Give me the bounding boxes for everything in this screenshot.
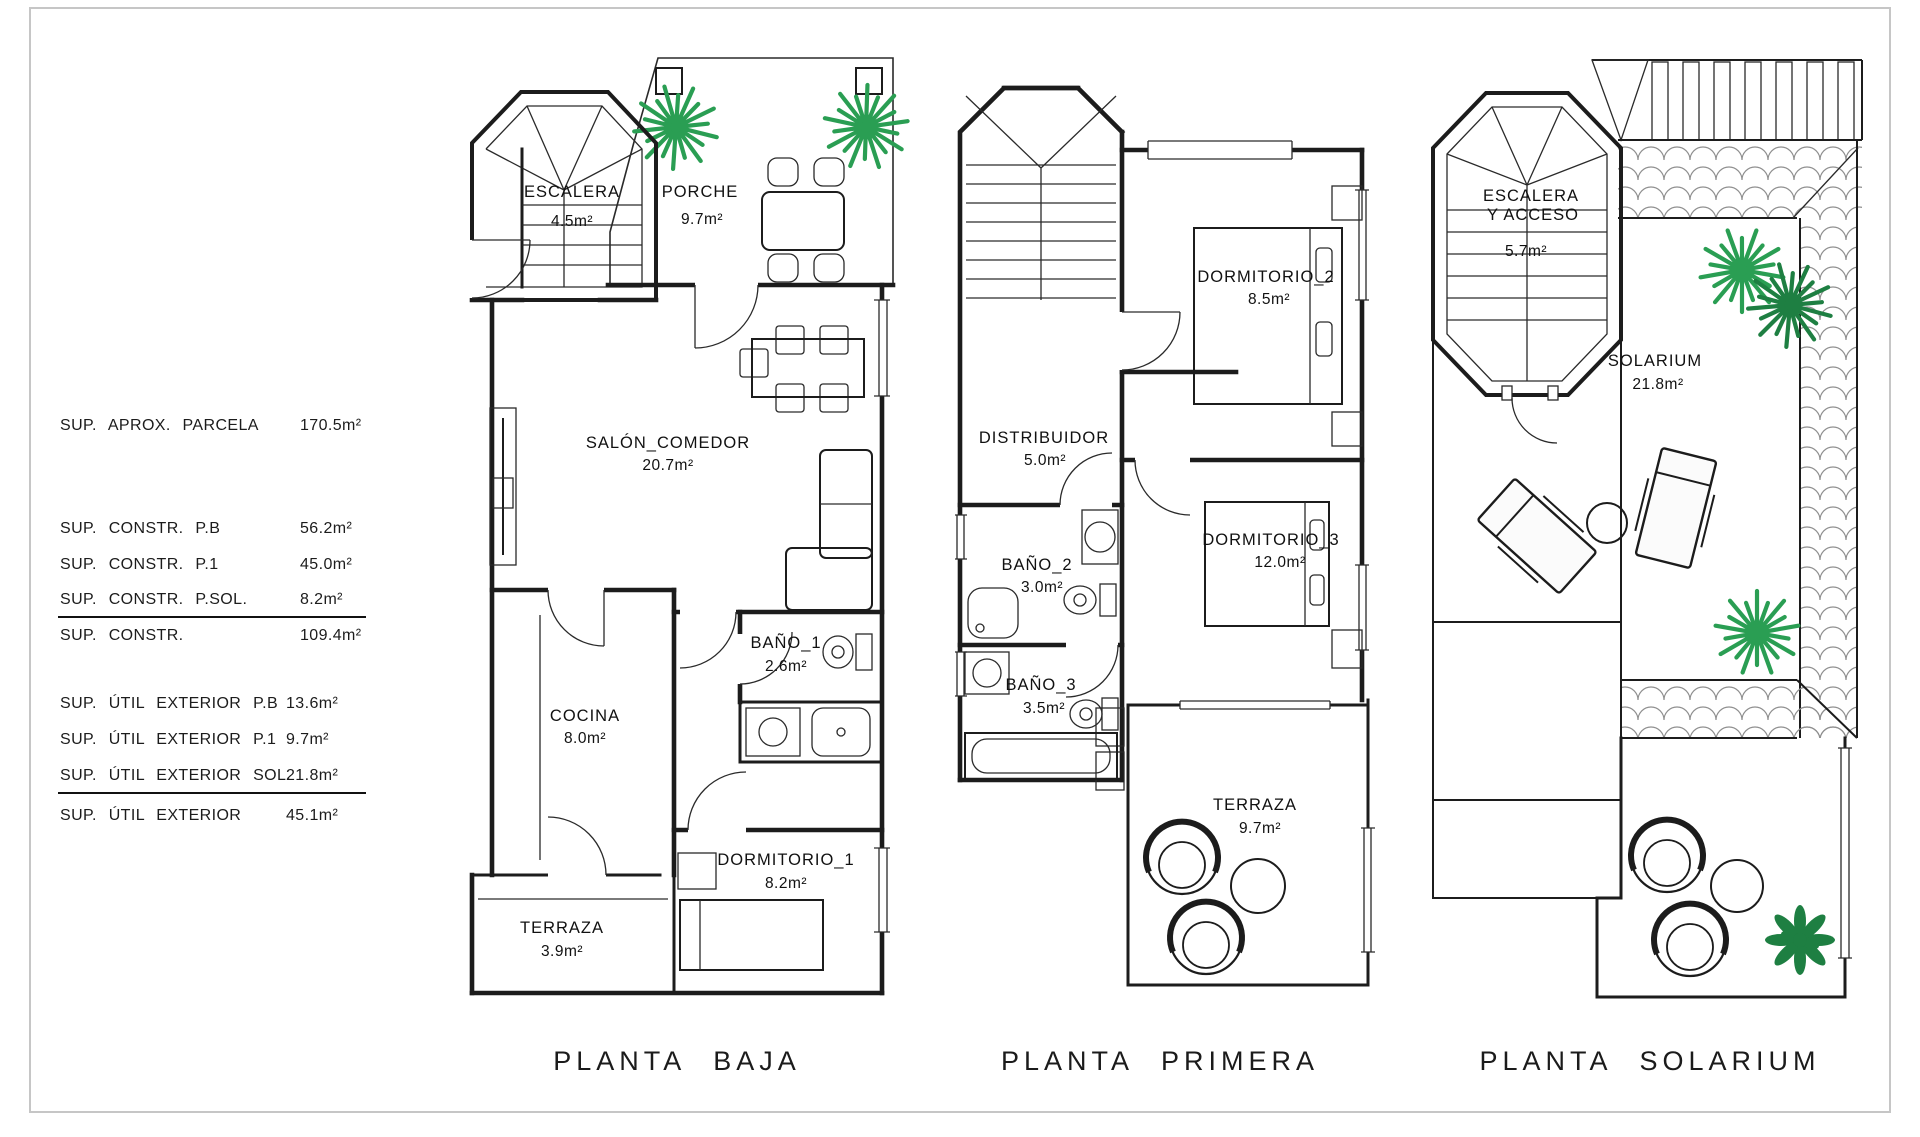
room-area-escalera-acceso: 5.7m² — [1505, 243, 1547, 260]
solarium-furniture — [1473, 446, 1722, 598]
plan-title-planta-baja: PLANTA BAJA — [553, 1046, 801, 1077]
summary-value: 45.0m² — [300, 556, 352, 574]
palm-plant-small — [1702, 577, 1814, 689]
summary-label: SUP. ÚTIL EXTERIOR SOL. — [60, 767, 291, 784]
summary-label: SUP. CONSTR. P.B — [60, 520, 220, 537]
summary-row-constr-psol: SUP. CONSTR. P.SOL. 8.2m² — [60, 591, 420, 613]
summary-label: SUP. ÚTIL EXTERIOR P.B — [60, 695, 278, 712]
room-area-salon: 20.7m² — [642, 457, 693, 474]
room-area-porche: 9.7m² — [681, 211, 723, 228]
summary-label: SUP. CONSTR. P.SOL. — [60, 591, 247, 608]
summary-value: 45.1m² — [286, 807, 338, 825]
summary-row-parcela: SUP. APROX. PARCELA 170.5m² — [60, 417, 420, 439]
summary-label: SUP. APROX. PARCELA — [60, 417, 259, 434]
plan-planta-baja: ESCALERA 4.5m² PORCHE 9.7m² SALÓN_COMEDO… — [466, 58, 913, 993]
room-label-salon: SALÓN_COMEDOR — [586, 433, 750, 452]
summary-label: SUP. CONSTR. P.1 — [60, 556, 219, 573]
summary-row-util-sol: SUP. ÚTIL EXTERIOR SOL. 21.8m² — [60, 767, 420, 789]
summary-value: 8.2m² — [300, 591, 343, 609]
room-label-terraza-pb: TERRAZA — [520, 919, 604, 937]
doors — [466, 240, 792, 881]
room-label-porche: PORCHE — [662, 183, 739, 201]
summary-row-constr-pb: SUP. CONSTR. P.B 56.2m² — [60, 520, 420, 542]
porch-chair — [768, 158, 798, 186]
plan-title-planta-primera: PLANTA PRIMERA — [1001, 1046, 1319, 1077]
summary-label: SUP. ÚTIL EXTERIOR P.1 — [60, 731, 276, 748]
room-area-bano3: 3.5m² — [1023, 700, 1065, 717]
room-label-dorm3: DORMITORIO_3 — [1202, 531, 1339, 549]
room-area-bano2: 3.0m² — [1021, 579, 1063, 596]
porch-chair — [768, 254, 798, 282]
plan-title-planta-solarium: PLANTA SOLARIUM — [1479, 1046, 1820, 1077]
summary-value: 9.7m² — [286, 731, 329, 749]
bathroom1-fixtures — [746, 634, 872, 756]
summary-row-constr-p1: SUP. CONSTR. P.1 45.0m² — [60, 556, 420, 578]
room-label-terraza-p1: TERRAZA — [1213, 796, 1297, 814]
bush-plant — [1765, 905, 1835, 975]
lower-roof-block — [1433, 340, 1621, 898]
dining-table — [752, 339, 864, 397]
summary-row-util-pb: SUP. ÚTIL EXTERIOR P.B 13.6m² — [60, 695, 420, 717]
room-label-bano3: BAÑO_3 — [1005, 674, 1076, 694]
summary-value: 170.5m² — [300, 417, 362, 435]
floorplan-sheet: ESCALERA 4.5m² PORCHE 9.7m² SALÓN_COMEDO… — [0, 0, 1920, 1137]
room-area-dorm1: 8.2m² — [765, 875, 807, 892]
summary-label: SUP. ÚTIL EXTERIOR — [60, 807, 241, 824]
plan-planta-primera: DORMITORIO_2 8.5m² DISTRIBUIDOR 5.0m² BA… — [955, 88, 1375, 985]
room-area-cocina: 8.0m² — [564, 730, 606, 747]
room-label-escalera: ESCALERA — [524, 183, 620, 201]
terrace-furniture — [1146, 822, 1285, 974]
summary-value: 109.4m² — [300, 627, 362, 645]
lower-terrace — [1597, 738, 1852, 997]
summary-value: 56.2m² — [300, 520, 352, 538]
summary-row-constr-total: SUP. CONSTR. 109.4m² — [60, 627, 420, 649]
interior-walls — [492, 590, 882, 875]
bedroom2-furniture — [1194, 186, 1362, 446]
summary-value: 13.6m² — [286, 695, 338, 713]
porch-chair — [814, 158, 844, 186]
bedroom3-furniture — [1205, 502, 1362, 668]
room-label-escalera-acceso-line2: Y ACCESO — [1487, 206, 1579, 224]
summary-divider — [58, 616, 366, 618]
summary-row-util-total: SUP. ÚTIL EXTERIOR 45.1m² — [60, 807, 420, 829]
room-label-cocina: COCINA — [550, 707, 620, 725]
bathroom2-fixtures — [968, 510, 1118, 638]
room-label-dorm2: DORMITORIO_2 — [1197, 268, 1334, 286]
summary-value: 21.8m² — [286, 767, 338, 785]
porch-chair — [814, 254, 844, 282]
room-label-dorm1: DORMITORIO_1 — [717, 851, 854, 869]
summary-divider — [58, 792, 366, 794]
bedroom1-furniture — [678, 853, 823, 970]
room-area-terraza-p1: 9.7m² — [1239, 820, 1281, 837]
stair-tower — [1433, 93, 1621, 443]
roof-tile-bands — [1618, 140, 1862, 738]
room-label-bano2: BAÑO_2 — [1001, 554, 1072, 574]
pergola — [1592, 60, 1862, 140]
summary-row-util-p1: SUP. ÚTIL EXTERIOR P.1 9.7m² — [60, 731, 420, 753]
porch-post — [656, 68, 682, 94]
room-area-escalera: 4.5m² — [551, 213, 593, 230]
room-area-terraza-pb: 3.9m² — [541, 943, 583, 960]
room-area-bano1: 2.6m² — [765, 658, 807, 675]
room-label-bano1: BAÑO_1 — [750, 632, 821, 652]
plan-planta-solarium: ESCALERA Y ACCESO 5.7m² SOLARIUM 21.8m² — [1433, 60, 1862, 997]
room-area-dorm3: 12.0m² — [1254, 554, 1305, 571]
room-area-distribuidor: 5.0m² — [1024, 452, 1066, 469]
porch-deck — [610, 58, 893, 285]
palm-plant-large — [1696, 222, 1791, 318]
summary-label: SUP. CONSTR. — [60, 627, 184, 644]
room-label-escalera-acceso-line1: ESCALERA — [1483, 187, 1579, 205]
porch-table — [762, 192, 844, 250]
room-area-dorm2: 8.5m² — [1248, 291, 1290, 308]
room-area-solarium: 21.8m² — [1632, 376, 1683, 393]
room-label-distribuidor: DISTRIBUIDOR — [979, 429, 1109, 447]
room-label-solarium: SOLARIUM — [1608, 352, 1702, 370]
